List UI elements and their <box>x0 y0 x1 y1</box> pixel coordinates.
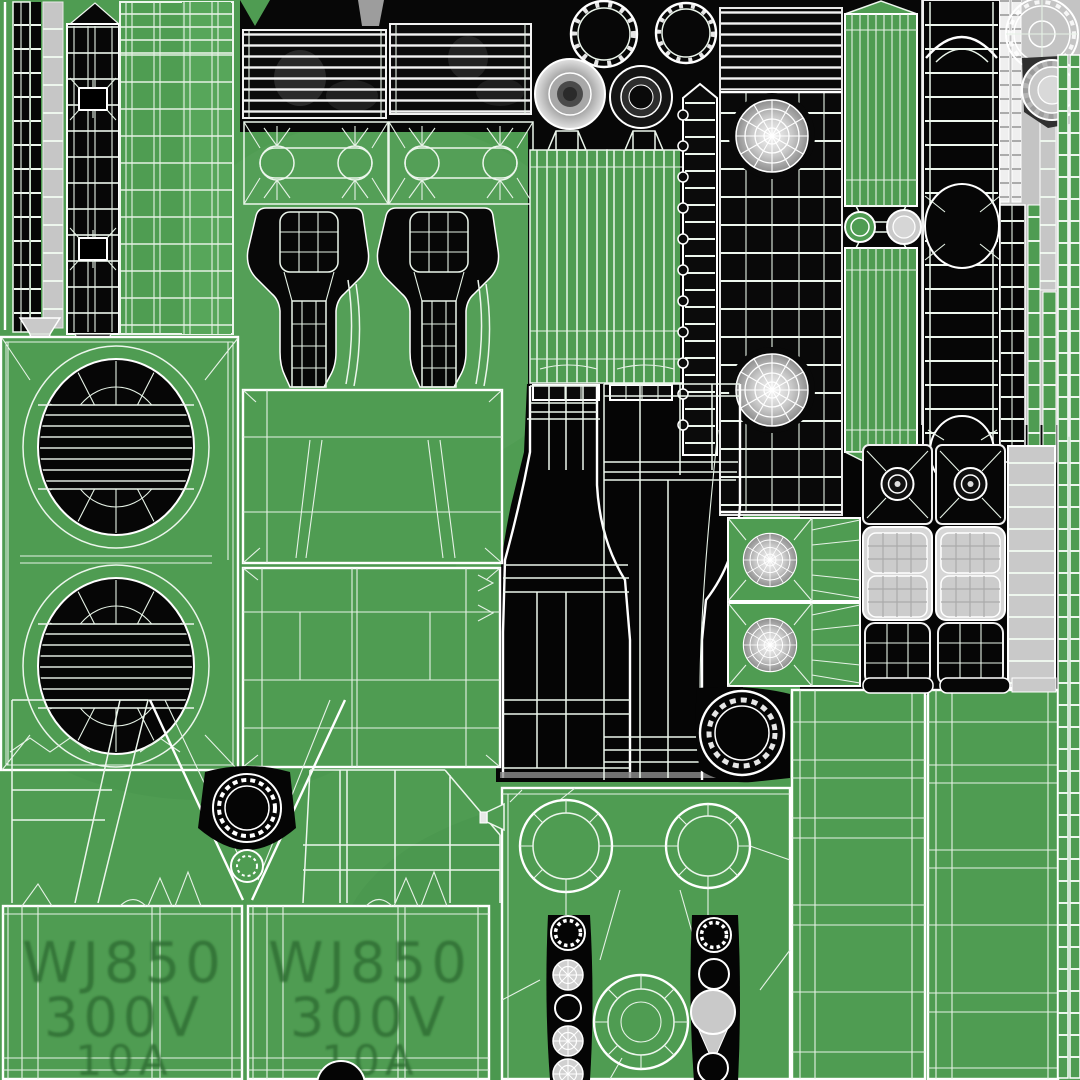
ring-socket <box>610 66 672 128</box>
gray-target-knob <box>535 59 605 129</box>
black-ladder-column <box>923 0 1000 488</box>
center-panel-a <box>243 390 502 563</box>
left-edge-strips <box>5 2 63 332</box>
striped-panel-2 <box>390 24 531 114</box>
plug-module-2 <box>936 445 1005 685</box>
cable-column-2 <box>607 131 684 383</box>
button-column-left <box>546 915 592 1080</box>
connector-tips-row <box>863 678 1056 693</box>
spider-web-bottom <box>736 354 808 426</box>
bottom-center-panel <box>480 788 790 1080</box>
plug-module-1 <box>863 445 932 685</box>
spider-square-2 <box>728 603 860 686</box>
marking-left-current: 10A <box>75 1036 172 1080</box>
bottom-right-panel-a <box>792 690 925 1079</box>
spider-web-top <box>736 100 808 172</box>
bottom-right-panel-b <box>928 690 1058 1079</box>
octagon-port <box>696 687 790 782</box>
black-grid-panel <box>720 8 842 515</box>
uv-texture-atlas: WJ850 300V 10A WJ850 300V 10A <box>0 0 1080 1080</box>
striped-panel-1 <box>243 30 386 118</box>
center-panel-b <box>243 568 500 767</box>
uv-atlas-canvas: WJ850 300V 10A WJ850 300V 10A <box>0 0 1080 1080</box>
gray-ladder-strip <box>1008 446 1055 688</box>
spider-square-1 <box>728 518 860 601</box>
scalloped-ladder-column <box>678 84 717 455</box>
button-column-right <box>690 915 740 1080</box>
cable-column-1 <box>530 131 607 383</box>
green-grid-column <box>120 2 233 334</box>
